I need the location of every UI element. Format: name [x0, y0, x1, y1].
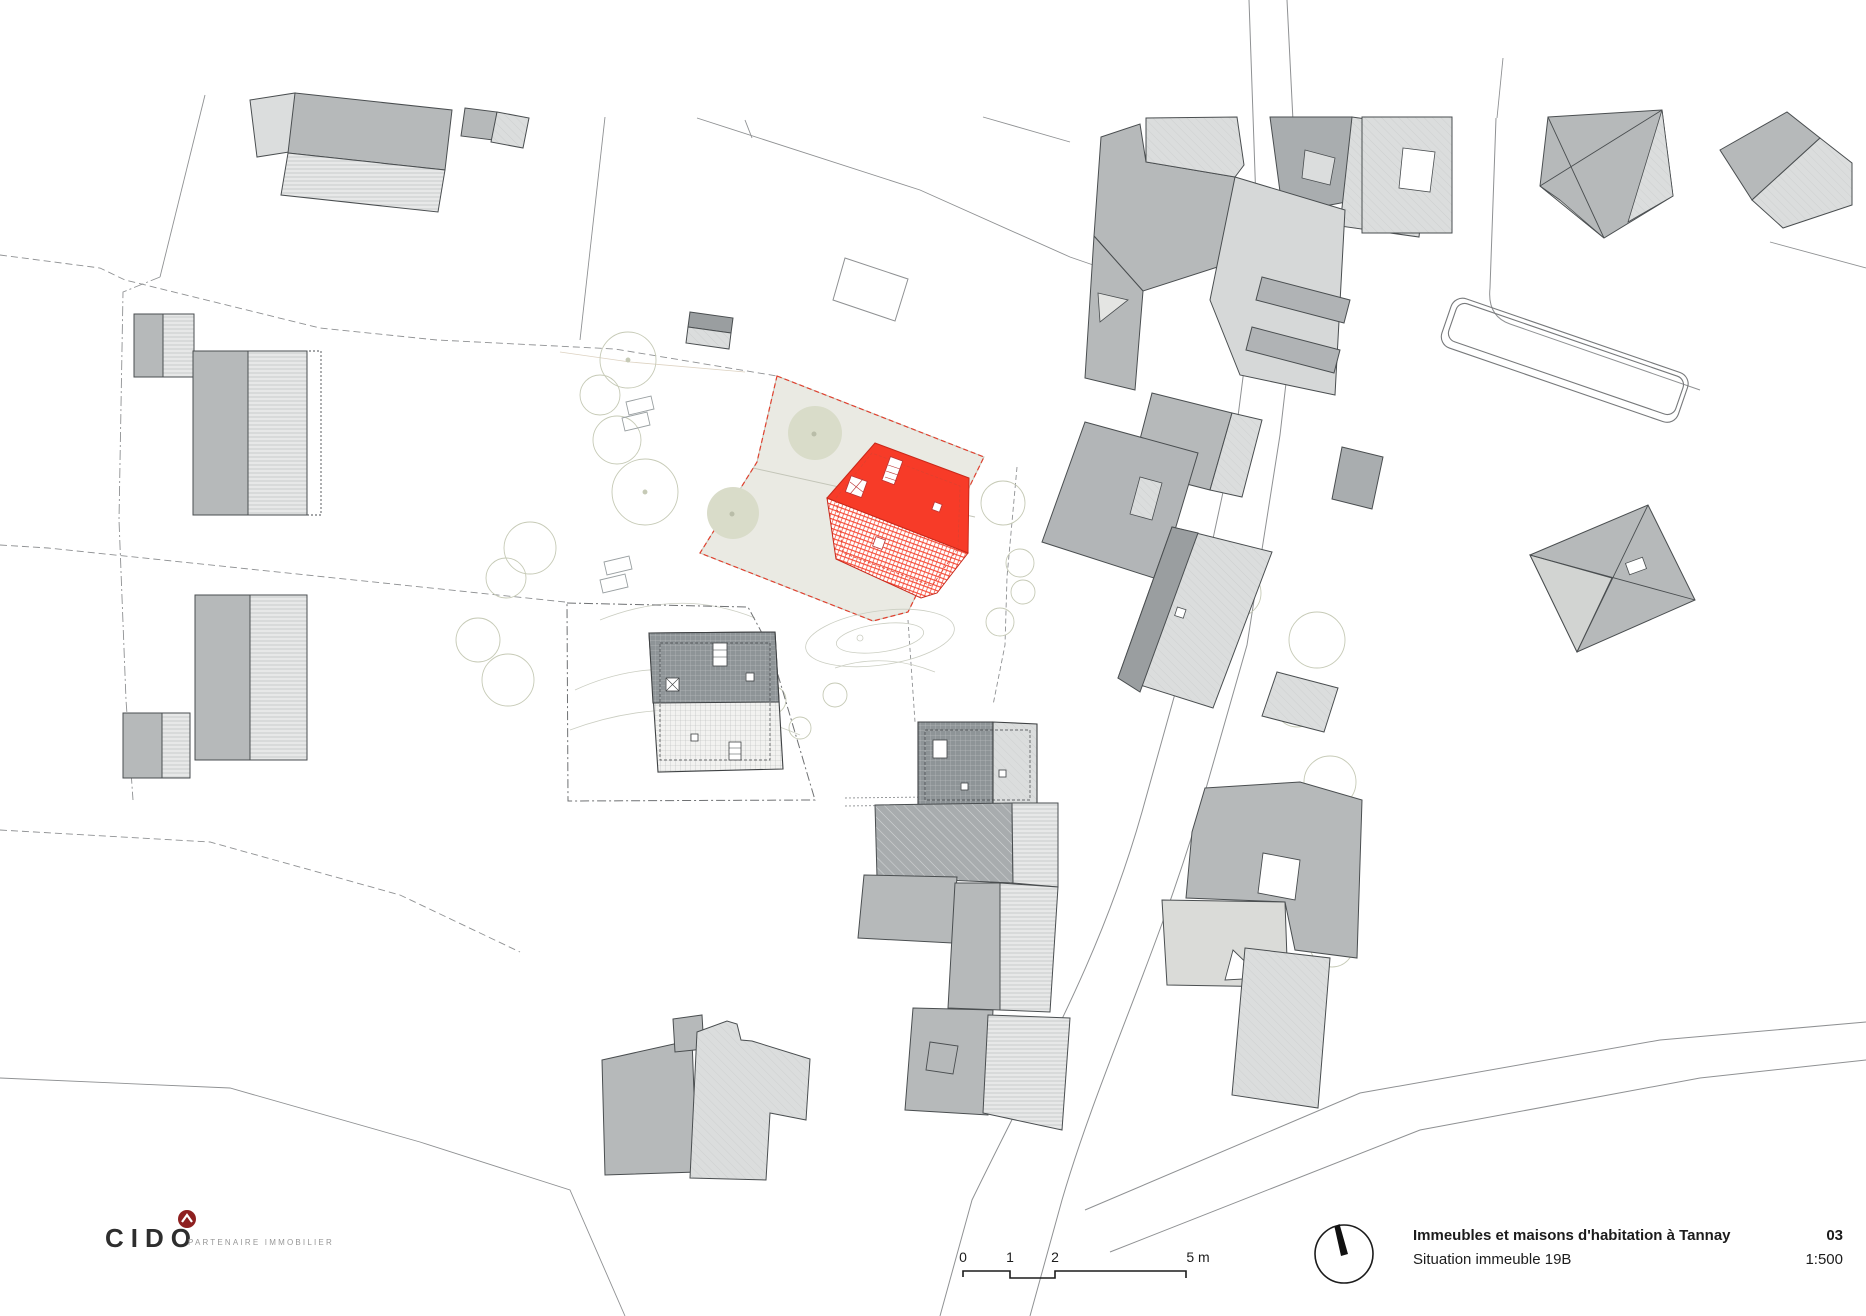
scale-bar: 0 1 2 5 m — [959, 1249, 1210, 1278]
sheet-scale: 1:500 — [1805, 1251, 1843, 1268]
buildings-right-middle — [1042, 422, 1695, 732]
cido-logo: CIDO PARTENAIRE IMMOBILIER — [105, 1210, 334, 1253]
scale-label-5m: 5 m — [1186, 1249, 1209, 1265]
logo-circle-icon — [178, 1210, 196, 1228]
footer: CIDO PARTENAIRE IMMOBILIER 0 1 2 5 m Imm… — [105, 1210, 1843, 1283]
sheet-number: 03 — [1826, 1227, 1843, 1244]
site-plan-sheet: CIDO PARTENAIRE IMMOBILIER 0 1 2 5 m Imm… — [0, 0, 1866, 1316]
scale-label-2: 2 — [1051, 1249, 1059, 1265]
sheet-title: Immeubles et maisons d'habitation à Tann… — [1413, 1227, 1731, 1244]
house-b — [918, 722, 1037, 808]
buildings-east-of-road — [1162, 782, 1362, 1108]
logo-tagline: PARTENAIRE IMMOBILIER — [188, 1238, 334, 1247]
scale-label-0: 0 — [959, 1249, 967, 1265]
sheet-subtitle: Situation immeuble 19B — [1413, 1251, 1571, 1268]
title-block: Immeubles et maisons d'habitation à Tann… — [1413, 1227, 1843, 1268]
garden-house — [649, 632, 783, 772]
hip-roof-building-right — [1530, 505, 1695, 652]
scale-bar-graphic — [963, 1271, 1186, 1278]
small-structures-center — [686, 258, 908, 349]
buildings-top-left — [123, 93, 529, 778]
house-bottom-left — [602, 1015, 810, 1180]
scale-label-1: 1 — [1006, 1249, 1014, 1265]
buildings-top-right — [1362, 110, 1852, 238]
site-plan-canvas: CIDO PARTENAIRE IMMOBILIER 0 1 2 5 m Imm… — [0, 0, 1866, 1316]
north-arrow — [1315, 1224, 1373, 1283]
parking-enclosure — [1438, 295, 1691, 426]
buildings-bottom-center — [858, 803, 1070, 1130]
